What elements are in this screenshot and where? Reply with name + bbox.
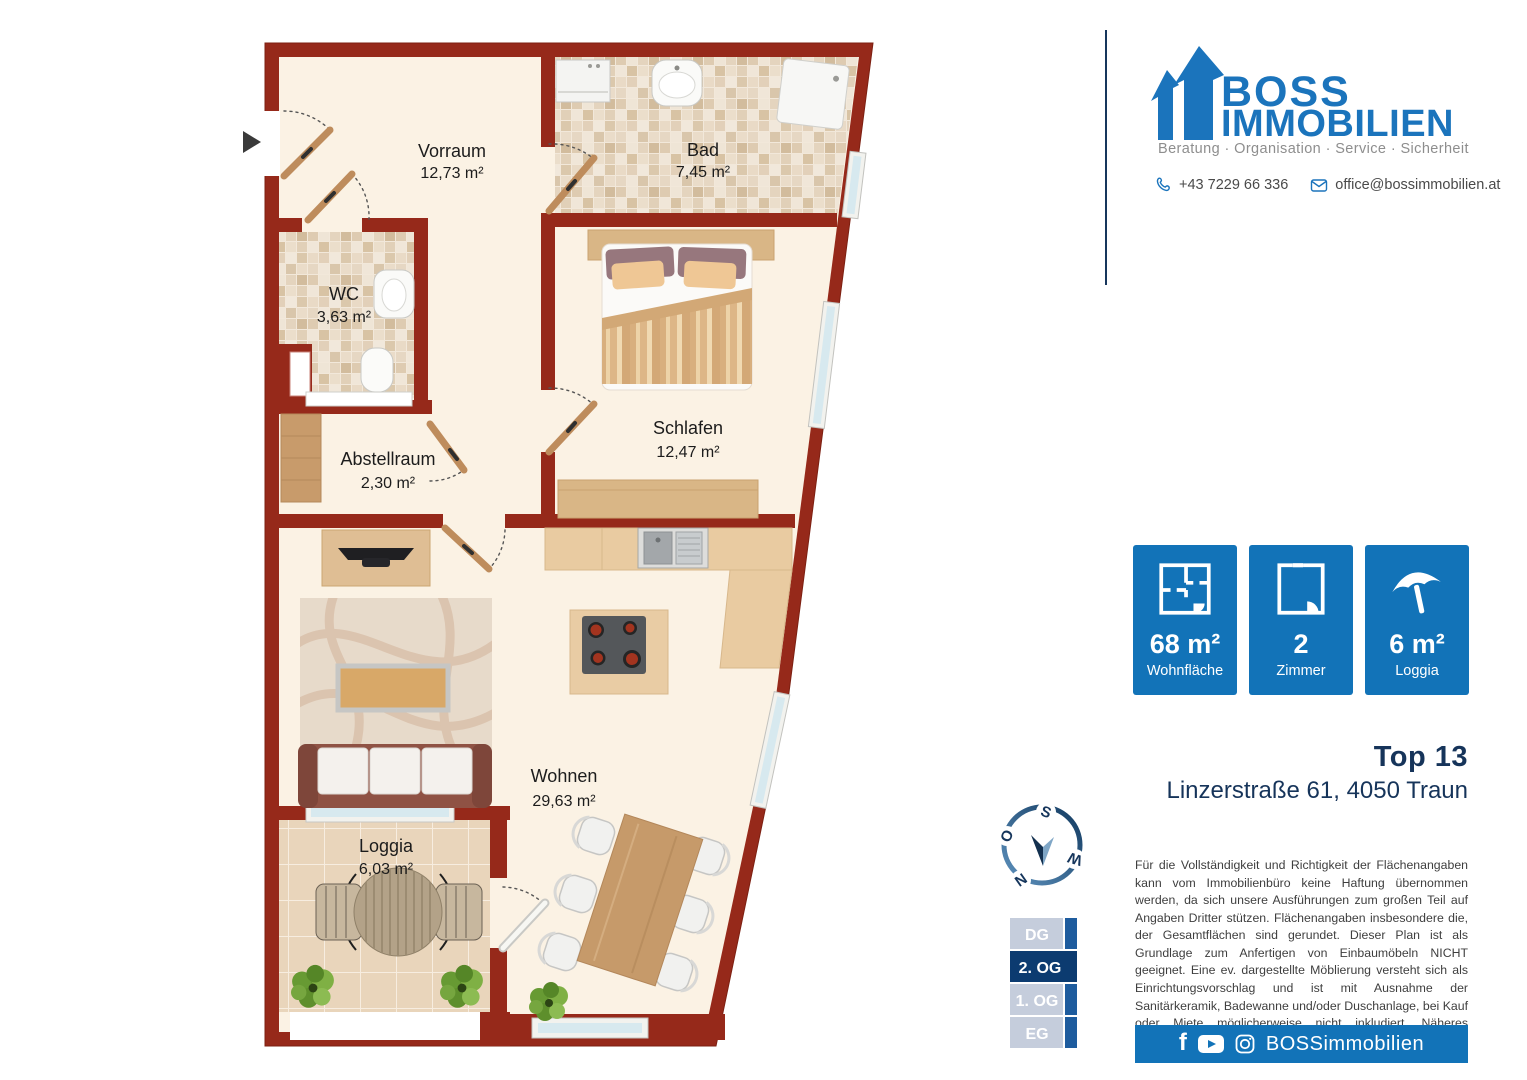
kitchen-sink bbox=[638, 528, 708, 568]
brand-tagline: Beratung · Organisation · Service · Sich… bbox=[1158, 141, 1488, 157]
room-area: 12,73 m² bbox=[420, 165, 484, 182]
room-label: Wohnen bbox=[531, 766, 598, 786]
room-area: 6,03 m² bbox=[359, 861, 414, 878]
floorplan-icon bbox=[1154, 558, 1216, 620]
room-label: WC bbox=[329, 284, 359, 304]
social-bar[interactable]: f BOSSimmobilien bbox=[1135, 1025, 1468, 1063]
room-label: Schlafen bbox=[653, 418, 723, 438]
umbrella-icon bbox=[1386, 558, 1448, 620]
stat-label: Wohnfläche bbox=[1147, 663, 1223, 679]
loggia-chair bbox=[436, 884, 482, 940]
email-icon bbox=[1310, 178, 1328, 193]
listing-title-block: Top 13 Linzerstraße 61, 4050 Traun bbox=[1130, 741, 1468, 805]
stat-value: 6 m² bbox=[1389, 629, 1445, 660]
social-handle: BOSSimmobilien bbox=[1266, 1033, 1424, 1056]
stat-label: Zimmer bbox=[1276, 663, 1325, 679]
room-area: 7,45 m² bbox=[676, 164, 731, 181]
logo-text-immobilien: IMMOBILIEN bbox=[1221, 103, 1454, 146]
stat-zimmer: 2 Zimmer bbox=[1249, 545, 1353, 695]
compass-needle bbox=[1043, 837, 1054, 866]
wardrobe bbox=[558, 480, 758, 518]
disclaimer-text: Für die Vollständigkeit und Richtigkeit … bbox=[1135, 857, 1468, 1050]
stat-loggia: 6 m² Loggia bbox=[1365, 545, 1469, 695]
bad-washbasin bbox=[652, 60, 702, 106]
phone-link[interactable]: +43 7229 66 336 bbox=[1156, 177, 1288, 193]
storage-shelf bbox=[281, 414, 321, 502]
tv-sideboard bbox=[322, 530, 430, 586]
stat-wohnflaeche: 68 m² Wohnfläche bbox=[1133, 545, 1237, 695]
room-label: Abstellraum bbox=[340, 449, 435, 469]
compass: S O W N bbox=[997, 802, 1085, 890]
loggia-table bbox=[354, 868, 442, 956]
room-label: Bad bbox=[687, 140, 719, 160]
entrance-arrow bbox=[243, 131, 261, 153]
stat-boxes: 68 m² Wohnfläche 2 Zimmer 6 m² Loggia bbox=[1133, 545, 1469, 695]
toilet bbox=[361, 348, 393, 392]
floorplan-drawing: Vorraum 12,73 m² Bad 7,45 m² WC 3,63 m² … bbox=[0, 0, 1110, 1080]
phone-icon bbox=[1156, 177, 1172, 193]
contact-row: +43 7229 66 336 office@bossimmobilien.at bbox=[1156, 177, 1500, 193]
email-address: office@bossimmobilien.at bbox=[1335, 177, 1500, 193]
listing-address: Linzerstraße 61, 4050 Traun bbox=[1130, 777, 1468, 805]
room-label: Vorraum bbox=[418, 141, 486, 161]
coffee-table bbox=[338, 666, 448, 710]
stat-label: Loggia bbox=[1395, 663, 1439, 679]
room-area: 29,63 m² bbox=[532, 793, 596, 810]
shower bbox=[776, 58, 849, 130]
stat-value: 68 m² bbox=[1150, 629, 1221, 660]
room-label: Loggia bbox=[359, 836, 414, 856]
washing-machine bbox=[556, 60, 610, 102]
sofa bbox=[298, 744, 492, 808]
youtube-icon[interactable] bbox=[1198, 1035, 1224, 1053]
kitchen-island bbox=[570, 610, 668, 694]
logo-icon bbox=[1148, 42, 1228, 144]
listing-title: Top 13 bbox=[1130, 741, 1468, 774]
instagram-icon[interactable] bbox=[1235, 1034, 1255, 1054]
kitchen-counter-arm bbox=[720, 570, 792, 668]
floor-selector: DG 2. OG 1. OG EG bbox=[1010, 918, 1077, 1048]
floor-label: 1. OG bbox=[1016, 993, 1059, 1010]
facebook-icon[interactable]: f bbox=[1179, 1031, 1187, 1055]
room-area: 12,47 m² bbox=[656, 444, 720, 461]
floor-label-active: 2. OG bbox=[1019, 960, 1062, 977]
room-icon bbox=[1270, 558, 1332, 620]
floor-label: DG bbox=[1025, 927, 1049, 944]
floor-label: EG bbox=[1025, 1026, 1048, 1043]
compass-needle bbox=[1031, 835, 1043, 866]
room-area: 3,63 m² bbox=[317, 309, 372, 326]
room-area: 2,30 m² bbox=[361, 475, 416, 492]
email-link[interactable]: office@bossimmobilien.at bbox=[1310, 177, 1500, 193]
phone-number: +43 7229 66 336 bbox=[1179, 177, 1288, 193]
vertical-divider bbox=[1105, 30, 1107, 285]
stat-value: 2 bbox=[1293, 629, 1308, 660]
